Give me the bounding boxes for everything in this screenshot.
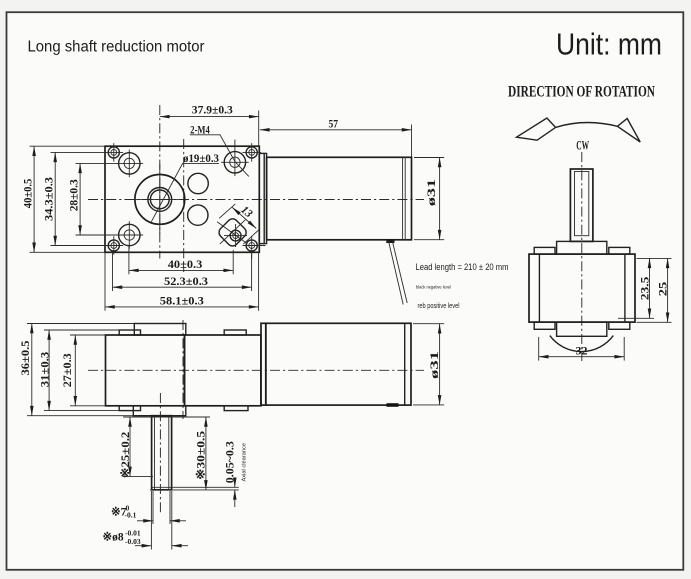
svg-text:31±0.3: 31±0.3: [39, 352, 51, 388]
svg-text:Long shaft reduction motor: Long shaft reduction motor: [28, 39, 205, 56]
svg-text:58.1±0.3: 58.1±0.3: [160, 296, 204, 308]
svg-text:40±0.5: 40±0.5: [22, 178, 34, 208]
svg-text:23.5: 23.5: [639, 276, 651, 300]
svg-text:Unit: mm: Unit: mm: [556, 28, 662, 62]
svg-text:25: 25: [658, 281, 670, 296]
svg-text:reb positive level: reb positive level: [418, 301, 460, 310]
svg-text:40±0.3: 40±0.3: [168, 259, 203, 271]
svg-text:27±0.3: 27±0.3: [62, 353, 74, 387]
svg-text:CW: CW: [576, 137, 589, 152]
svg-text:28±0.3: 28±0.3: [68, 179, 80, 211]
svg-text:-0.1: -0.1: [125, 510, 137, 519]
svg-text:34.3±0.3: 34.3±0.3: [44, 177, 56, 221]
svg-text:Lead length = 210 ± 20 mm: Lead length = 210 ± 20 mm: [416, 262, 509, 272]
svg-text:57: 57: [329, 119, 339, 131]
svg-text:ø31: ø31: [426, 178, 438, 206]
svg-text:36±0.5: 36±0.5: [20, 340, 32, 375]
svg-text:※ø8: ※ø8: [103, 531, 124, 544]
svg-text:52.3±0.3: 52.3±0.3: [164, 276, 208, 288]
svg-text:DIRECTION OF ROTATION: DIRECTION OF ROTATION: [508, 84, 655, 101]
svg-text:Axial clearance: Axial clearance: [242, 443, 248, 482]
svg-text:ø31: ø31: [429, 351, 441, 379]
svg-text:-0.03: -0.03: [125, 537, 141, 546]
svg-text:※30±0.5: ※30±0.5: [195, 431, 208, 480]
svg-text:37.9±0.3: 37.9±0.3: [192, 105, 233, 117]
svg-text:32: 32: [576, 345, 588, 357]
svg-text:black negative level: black negative level: [416, 285, 451, 291]
svg-text:0.05~0.3: 0.05~0.3: [224, 441, 236, 483]
svg-text:※25±0.2: ※25±0.2: [119, 431, 132, 478]
